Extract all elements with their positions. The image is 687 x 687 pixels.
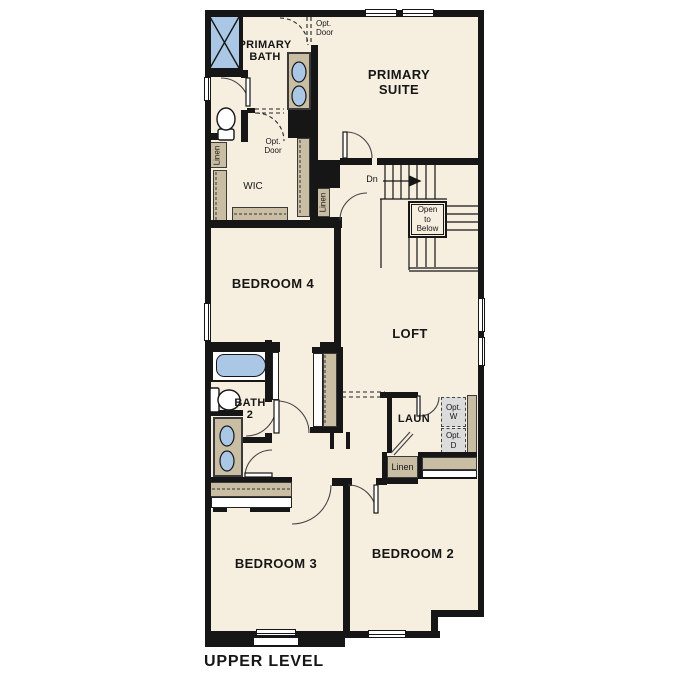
- wall-segment: [247, 108, 255, 113]
- opt-door-wic-line2: Door: [250, 146, 296, 155]
- wall-segment: [337, 347, 343, 432]
- optional-dryer-box: Opt. D: [441, 428, 466, 453]
- window: [478, 337, 485, 366]
- window: [365, 9, 397, 17]
- stairs-down-text: Dn: [366, 174, 378, 184]
- wall-segment: [330, 432, 334, 449]
- optional-washer-box: Opt. W: [441, 397, 466, 427]
- window: [204, 77, 211, 101]
- hall-closet-interior: [313, 353, 323, 427]
- bedroom3-text: BEDROOM 3: [235, 556, 317, 571]
- primary-bath-label: PRIMARY BATH: [222, 39, 308, 63]
- hall-linen-label-box: Linen: [315, 188, 330, 217]
- bath2-label: BATH 2: [228, 397, 272, 421]
- bedroom2-label: BEDROOM 2: [351, 546, 475, 561]
- window-mullion: [482, 299, 483, 331]
- bedroom2-closet-track: [418, 477, 477, 479]
- bedroom2-text: BEDROOM 2: [372, 546, 454, 561]
- opt-door-upper-line2: Door: [316, 28, 356, 37]
- window-mullion: [208, 304, 209, 340]
- wall-segment: [377, 158, 478, 165]
- wall-segment: [213, 508, 227, 512]
- wall-segment: [288, 110, 311, 138]
- bedroom3-label: BEDROOM 3: [214, 556, 338, 571]
- wall-segment: [438, 610, 484, 617]
- wall-segment: [241, 70, 248, 78]
- loft-text: LOFT: [392, 326, 428, 341]
- window: [204, 303, 211, 341]
- primary-suite-label: PRIMARY SUITE: [340, 67, 458, 97]
- wic-linen-label: Linen: [212, 145, 221, 165]
- wall-segment: [382, 478, 418, 484]
- laundry-linen-label: Linen: [387, 462, 418, 472]
- optional-dryer-label-line1: Opt.: [446, 431, 461, 441]
- wall-segment: [250, 508, 290, 512]
- wall-segment: [311, 45, 318, 112]
- opt-door-upper-line1: Opt.: [316, 19, 356, 28]
- laundry-cabinet-strip: [467, 395, 477, 453]
- loft-label: LOFT: [378, 326, 442, 341]
- bedroom4-door-leaf: [272, 352, 279, 400]
- wall-segment: [205, 133, 227, 140]
- wall-segment: [265, 340, 272, 402]
- wall-segment: [205, 477, 292, 482]
- plan-title-text: UPPER LEVEL: [204, 653, 324, 670]
- wall-segment: [334, 228, 341, 352]
- bathtub: [216, 354, 266, 377]
- primary-bath-line2: BATH: [222, 51, 308, 63]
- floor-plan: Opt. W Opt. D Open to Below: [0, 0, 687, 687]
- wall-segment: [387, 431, 392, 453]
- window: [256, 629, 296, 636]
- bath2-vanity: [213, 417, 243, 477]
- opt-door-upper-label: Opt. Door: [316, 19, 356, 37]
- wic-label-text: WIC: [243, 181, 262, 192]
- bedroom2-closet-shelf: [422, 457, 477, 470]
- wall-segment: [346, 432, 350, 449]
- wall-segment: [418, 452, 422, 478]
- wall-segment: [343, 486, 350, 631]
- laundry-text: LAUN: [398, 413, 430, 425]
- wall-segment: [241, 110, 248, 142]
- open-to-below-box: Open to Below: [408, 201, 447, 238]
- bedroom3-closet-rod: [211, 497, 292, 508]
- wall-segment: [205, 220, 342, 228]
- wic-shelf-left: [213, 170, 227, 222]
- plan-title: UPPER LEVEL: [204, 653, 364, 671]
- wall-segment: [310, 427, 343, 433]
- bedroom4-text: BEDROOM 4: [232, 276, 314, 291]
- laundry-label: LAUN: [390, 413, 438, 425]
- wall-segment: [340, 158, 372, 165]
- wic-shelf-right: [297, 138, 310, 217]
- laundry-linen-text: Linen: [391, 462, 413, 472]
- window-mullion: [257, 633, 295, 634]
- stairs-down-label: Dn: [363, 174, 381, 184]
- primary-suite-line1: PRIMARY: [340, 67, 458, 82]
- wall-segment: [243, 437, 272, 443]
- opt-door-wic-label: Opt. Door: [250, 137, 296, 155]
- window: [402, 9, 434, 17]
- window: [368, 630, 406, 638]
- open-to-below-line2: to: [424, 215, 431, 225]
- bath2-line2: 2: [228, 409, 272, 421]
- wall-segment: [380, 392, 418, 398]
- window-mullion: [369, 634, 405, 635]
- opt-door-wic-line1: Opt.: [250, 137, 296, 146]
- wall-segment: [318, 160, 340, 188]
- window-mullion: [403, 13, 433, 14]
- open-to-below-label: Open to Below: [411, 204, 444, 235]
- window-mullion: [208, 78, 209, 100]
- hall-closet-shelf: [323, 353, 337, 427]
- hall-linen-label: Linen: [318, 193, 327, 213]
- optional-washer-label-line1: Opt.: [446, 403, 461, 413]
- window-mullion: [366, 13, 396, 14]
- primary-bath-line1: PRIMARY: [222, 39, 308, 51]
- optional-dryer-label-line2: D: [451, 441, 457, 451]
- window: [478, 298, 485, 332]
- bedroom4-label: BEDROOM 4: [211, 276, 335, 291]
- wall-segment: [332, 478, 352, 486]
- wall-segment: [418, 452, 477, 457]
- window-mullion: [482, 338, 483, 365]
- open-to-below-line1: Open: [418, 205, 438, 215]
- wall-segment: [205, 10, 484, 17]
- optional-washer-label-line2: W: [450, 412, 458, 422]
- open-to-below-line3: Below: [417, 224, 439, 234]
- wic-label: WIC: [233, 181, 273, 192]
- bedroom3-closet-shelf: [208, 482, 292, 497]
- bedroom3-box-window: [252, 636, 300, 647]
- bath2-line1: BATH: [228, 397, 272, 409]
- wic-linen-label-box: Linen: [207, 142, 227, 168]
- primary-suite-line2: SUITE: [340, 82, 458, 97]
